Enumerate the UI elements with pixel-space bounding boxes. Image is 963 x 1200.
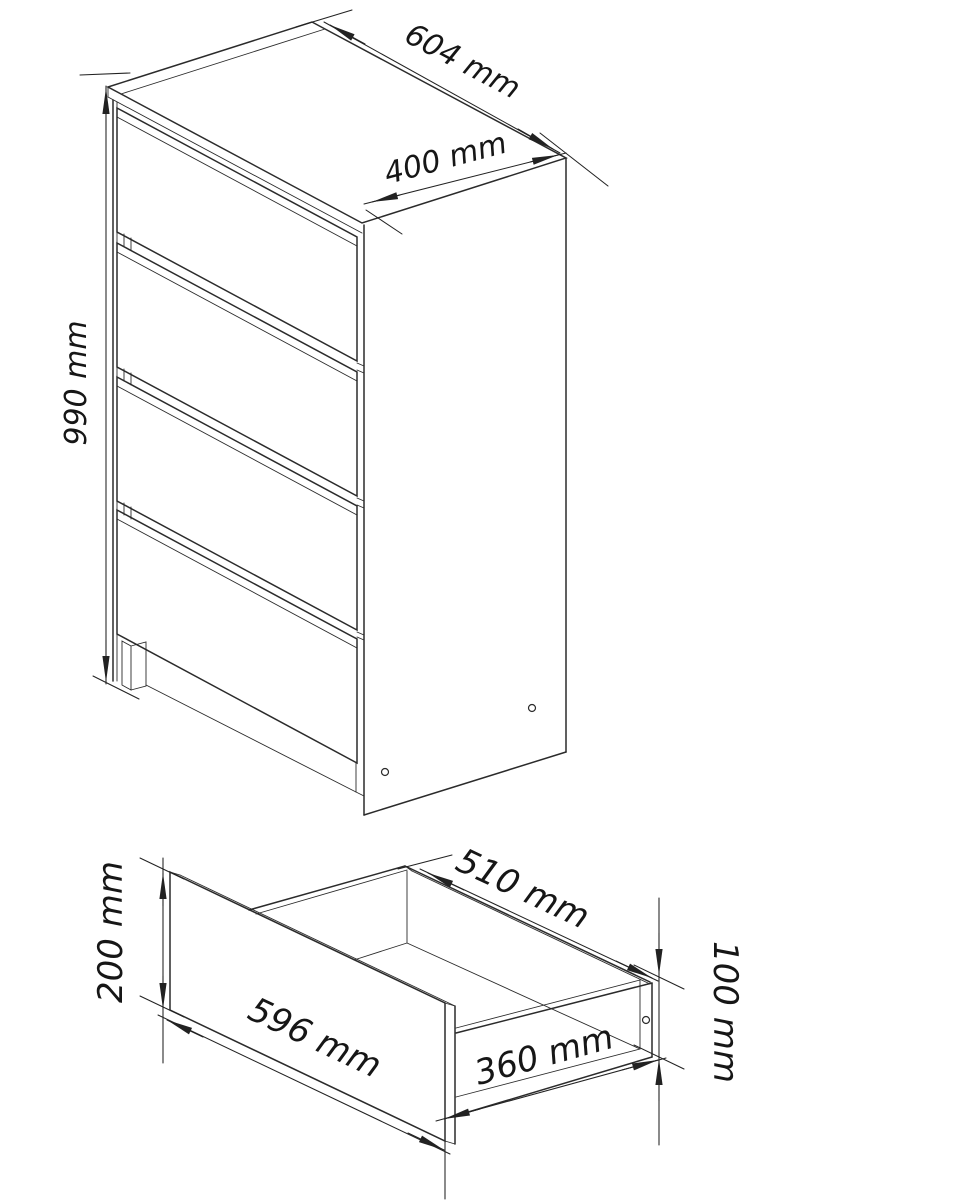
dim-ext bbox=[540, 133, 608, 186]
right-wall-top-outer bbox=[456, 983, 652, 1033]
dim-label-drawer-side-depth: 360 mm bbox=[470, 1017, 617, 1093]
cabinet-dimensions: 990 mm 604 mm 400 mm bbox=[59, 10, 608, 699]
dim-label-drawer-front-width: 596 mm bbox=[242, 990, 387, 1087]
front-foot bbox=[122, 641, 131, 690]
left-wall-top-inner bbox=[256, 870, 407, 914]
dim-tick bbox=[80, 73, 130, 75]
dim-label-cabinet-width: 604 mm bbox=[399, 17, 526, 107]
dim-label-cabinet-height: 990 mm bbox=[59, 320, 94, 445]
dim-label-drawer-inner-width: 510 mm bbox=[450, 841, 595, 938]
dim-tick bbox=[93, 676, 139, 699]
drawer-gap-notches-left bbox=[124, 234, 131, 519]
right-wall-top-inner bbox=[456, 980, 640, 1028]
dim-ext bbox=[366, 210, 402, 234]
cabinet-top-inset-line bbox=[121, 29, 325, 94]
floor-left-edge bbox=[354, 943, 407, 960]
drawer-front-1 bbox=[117, 108, 357, 361]
cabinet-top-face bbox=[108, 22, 566, 223]
side-panel-bottom-edge bbox=[364, 752, 566, 815]
cabinet-drawing: 990 mm 604 mm 400 mm bbox=[59, 10, 608, 815]
technical-drawing-page: 990 mm 604 mm 400 mm bbox=[0, 0, 963, 1200]
drawer-front-2 bbox=[117, 243, 357, 496]
cabinet-top-board-band bbox=[108, 97, 362, 233]
dim-ext bbox=[398, 855, 452, 869]
dim-label-drawer-side-height: 100 mm bbox=[705, 941, 745, 1083]
cam-hole-drawer-side bbox=[643, 1017, 650, 1024]
drawer-drawing: 200 mm 596 mm 510 mm 360 mm 100 bbox=[91, 841, 745, 1199]
dim-label-drawer-front-height: 200 mm bbox=[91, 861, 131, 1003]
drawer-front-top-inner bbox=[180, 875, 455, 1006]
dimension-diagram: 990 mm 604 mm 400 mm bbox=[0, 0, 963, 1200]
drawer-front-4 bbox=[117, 510, 357, 763]
drawer-front-panel bbox=[170, 872, 445, 1141]
dim-tick bbox=[140, 996, 184, 1017]
dim-ext bbox=[296, 10, 352, 27]
drawer-front-3 bbox=[117, 377, 357, 630]
left-wall-top-outer bbox=[249, 866, 405, 910]
cabinet-base bbox=[122, 641, 364, 796]
drawer-gap-steps-right bbox=[357, 363, 364, 640]
cam-hole-front bbox=[382, 769, 389, 776]
cam-hole-back bbox=[529, 705, 536, 712]
dim-tick bbox=[140, 858, 184, 879]
